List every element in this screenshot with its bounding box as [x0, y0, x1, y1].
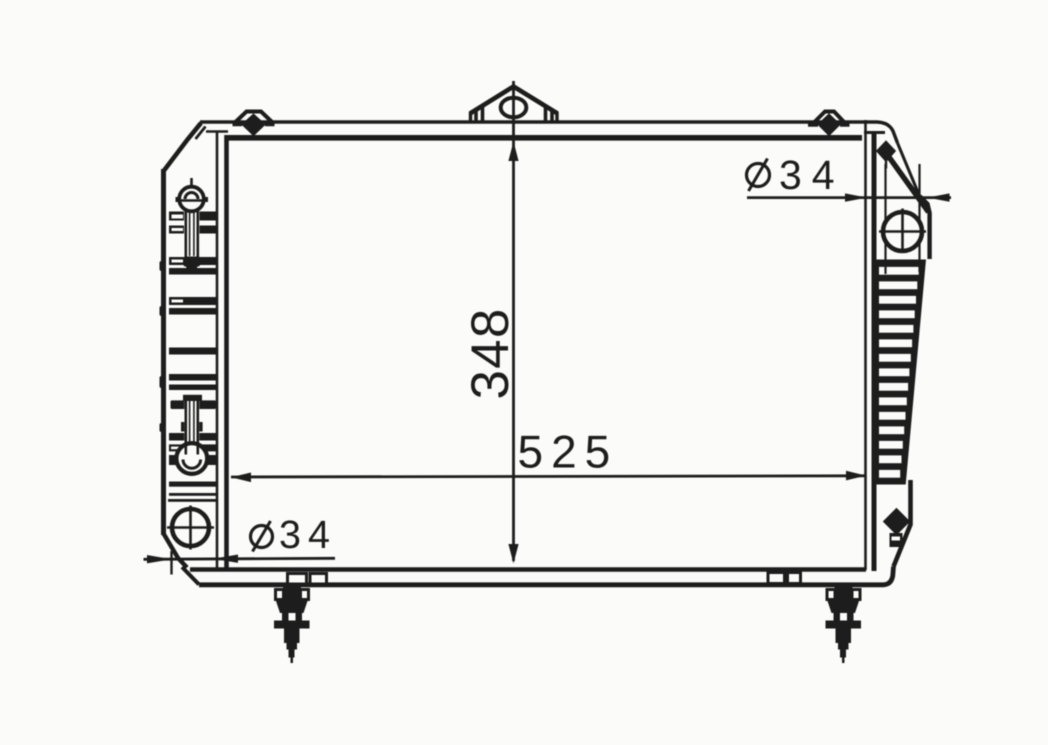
svg-text:34: 34 [779, 152, 845, 198]
svg-text:34: 34 [279, 513, 337, 557]
svg-text:348: 348 [461, 307, 520, 399]
svg-text:525: 525 [518, 426, 619, 478]
